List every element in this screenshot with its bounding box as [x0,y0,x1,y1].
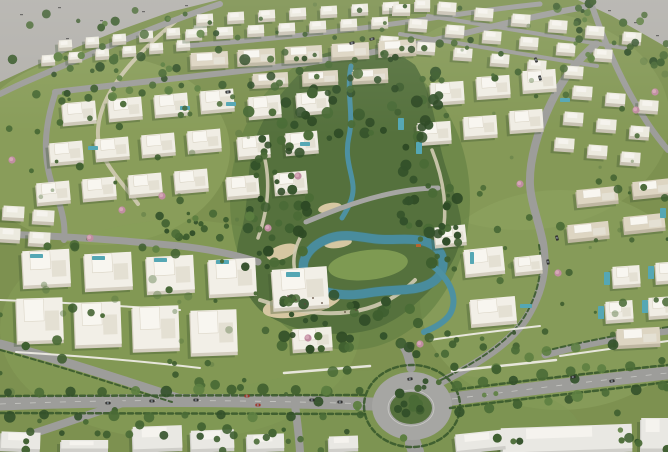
villa-building [518,69,557,97]
villa-building [328,42,370,63]
swimming-pool [286,272,300,277]
swimming-pool [300,142,310,146]
villa-building [129,425,183,452]
villa-building [0,431,41,452]
flowering-tree [294,172,301,179]
swimming-pool [520,304,532,308]
boat-speck [58,7,61,8]
swimming-pool [226,102,236,106]
swimming-pool [470,252,474,264]
boat-speck [66,38,69,39]
flowering-tree [158,192,165,199]
car [244,395,249,398]
villa-building [78,177,117,205]
swimming-pool [598,306,604,319]
swimming-pool [660,208,666,218]
swimming-pool [648,266,654,279]
car [255,404,260,407]
car [337,401,342,404]
villa-building [0,205,25,223]
aerial-render-svg [0,0,668,452]
boat-speck [608,10,611,11]
beach-hut [416,244,421,247]
roundabout-tree [400,400,407,407]
villa-building [186,309,238,359]
car [105,402,110,405]
villa-building [91,137,130,165]
person-speck [321,302,323,304]
swimming-pool [560,98,570,102]
swimming-pool [92,256,105,260]
aerial-masterplan-render [0,0,668,452]
flowering-tree [304,334,311,341]
swimming-pool [642,300,648,313]
villa-building [466,296,518,330]
roundabout-tree [394,405,402,413]
boat-speck [20,14,23,15]
villa-building [128,305,180,355]
flowering-tree [516,180,523,187]
villa-building [124,173,163,201]
boat-speck [142,11,145,12]
flowering-tree [264,224,271,231]
villa-building [299,70,339,89]
villa-building [187,51,229,72]
person-speck [312,297,314,299]
villa-building [459,115,498,143]
boat-speck [100,20,103,21]
swimming-pool [154,258,167,262]
villa-building [612,327,660,351]
flowering-tree [86,234,93,241]
villa-building [0,227,21,245]
villa-building [325,435,359,452]
flowering-tree [416,340,423,347]
swimming-pool [416,142,422,154]
villa-building [80,252,133,295]
villa-building [497,424,633,452]
swimming-pool [30,254,43,258]
swimming-pool [604,272,610,285]
person-speck [304,303,306,305]
swimming-pool [398,118,404,130]
person-speck [295,299,297,301]
car [309,399,314,402]
road [295,405,300,452]
villa-building [460,246,506,280]
villa-building [58,101,97,129]
villa-building [29,209,55,227]
boat-speck [185,5,188,6]
flowering-tree [632,106,639,113]
flowering-tree [118,206,125,213]
car [149,400,154,403]
flowering-tree [651,88,658,95]
villa-building [57,440,108,452]
flowering-tree [554,269,561,276]
villa-building [32,181,71,209]
person-speck [287,295,289,297]
villa-building [510,255,543,279]
villa-building [505,109,544,137]
villa-building [170,169,209,197]
car [225,90,230,93]
villa-building [204,258,257,301]
boat-speck [656,35,659,36]
person-speck [344,311,346,313]
villa-building [608,265,641,291]
roundabout-tree [402,409,411,418]
villa-building [222,175,260,203]
swimming-pool [88,146,98,150]
villa-building [70,301,122,351]
flowering-tree [8,156,15,163]
person-speck [355,309,357,311]
car [193,399,198,402]
